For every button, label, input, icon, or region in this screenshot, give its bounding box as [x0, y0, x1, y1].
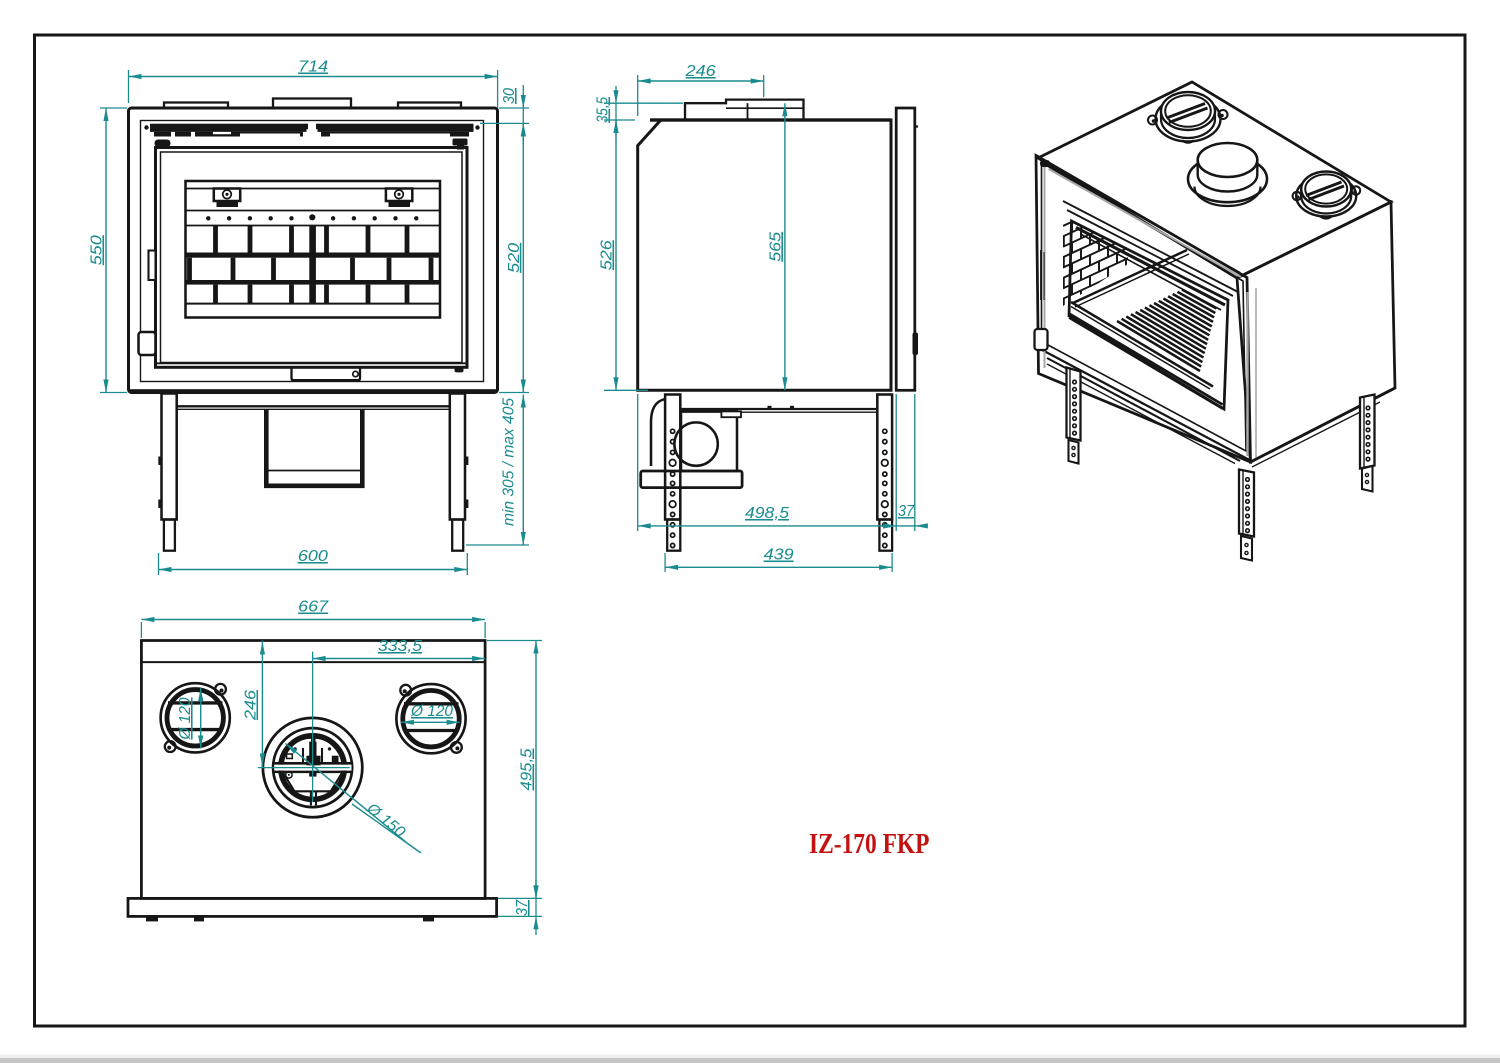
svg-text:30: 30: [501, 88, 518, 104]
svg-text:Ø 120: Ø 120: [177, 697, 194, 740]
svg-text:333,5: 333,5: [378, 638, 422, 655]
svg-text:550: 550: [89, 235, 106, 265]
svg-text:35,5: 35,5: [595, 97, 612, 123]
svg-text:439: 439: [764, 547, 794, 564]
svg-text:246: 246: [685, 63, 717, 80]
svg-text:min 305 / max 405: min 305 / max 405: [501, 398, 518, 526]
svg-text:714: 714: [298, 59, 328, 76]
svg-text:Ø 120: Ø 120: [410, 703, 453, 720]
svg-text:37: 37: [514, 899, 531, 916]
svg-text:246: 246: [243, 690, 260, 722]
svg-text:565: 565: [767, 231, 784, 261]
svg-text:600: 600: [298, 548, 328, 565]
svg-text:498,5: 498,5: [745, 505, 789, 522]
svg-text:520: 520: [506, 242, 523, 272]
svg-text:526: 526: [599, 240, 616, 270]
svg-text:IZ-170 FKP: IZ-170 FKP: [809, 829, 930, 860]
svg-text:37: 37: [898, 503, 915, 520]
svg-text:667: 667: [298, 599, 330, 616]
svg-text:495,5: 495,5: [519, 748, 536, 790]
